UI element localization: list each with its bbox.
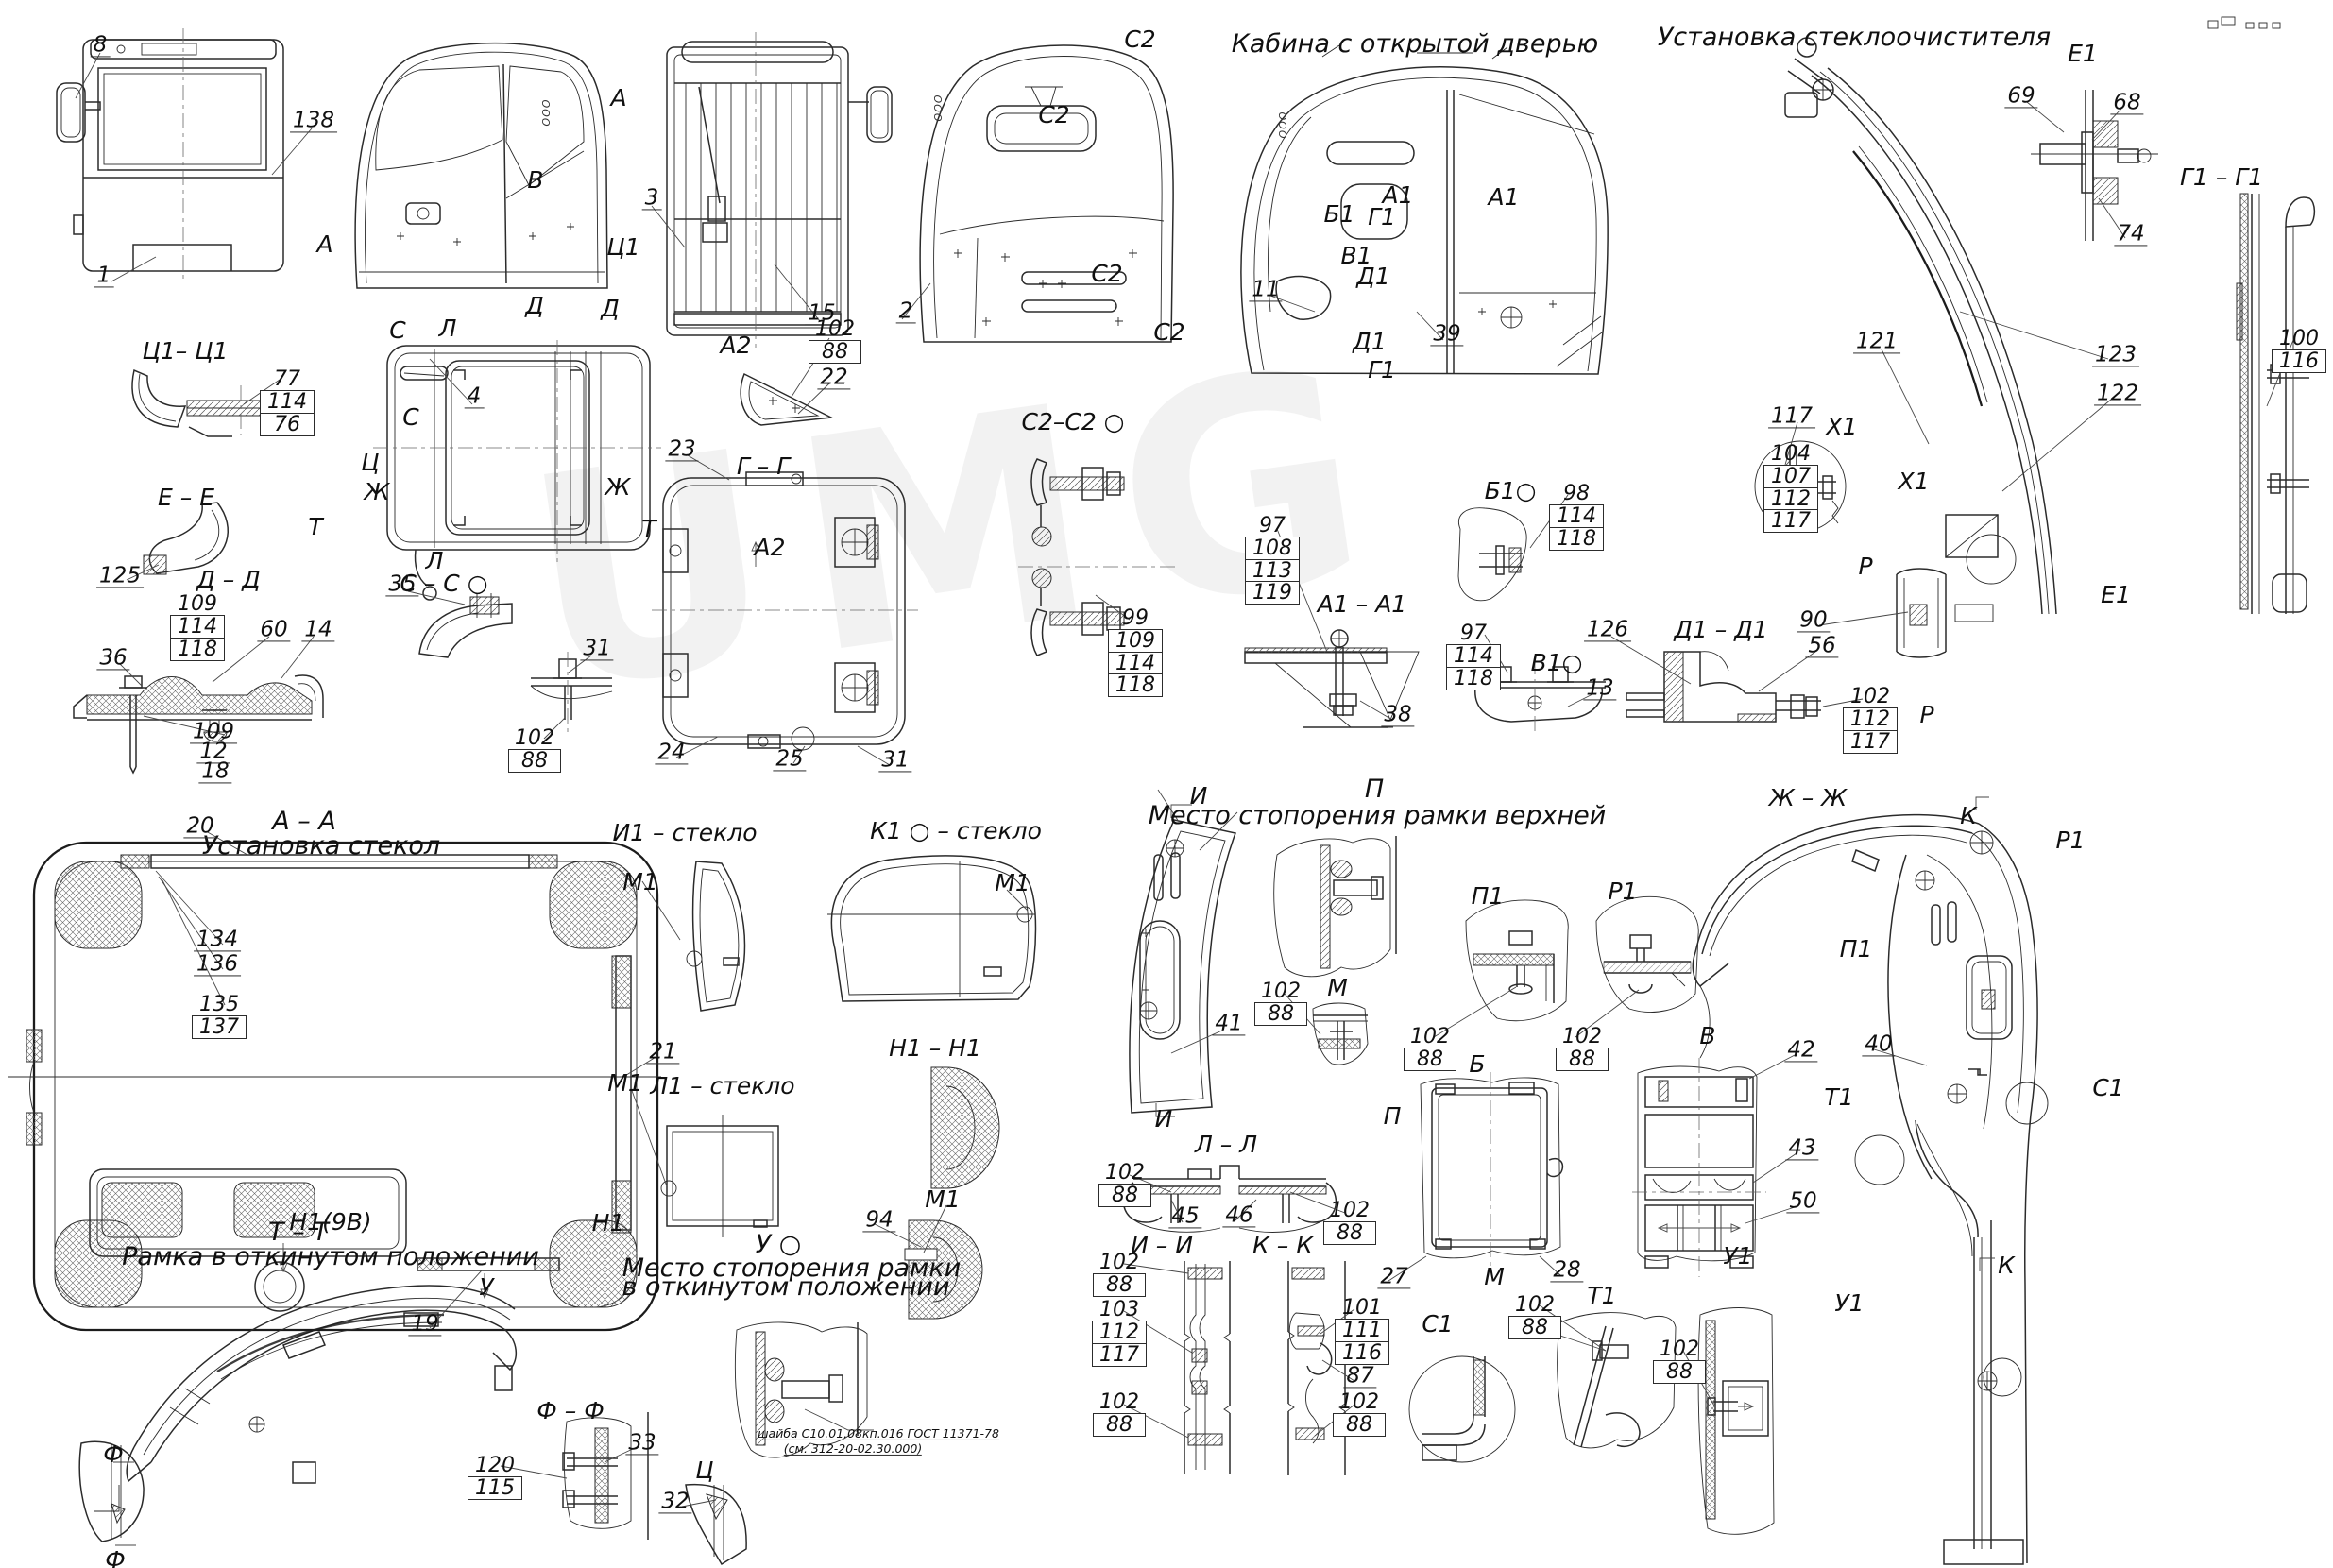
part-callout-stack: 104107112117	[1763, 443, 1818, 533]
detail-EE	[144, 503, 228, 574]
section-label: Ц1– Ц1	[142, 339, 228, 364]
part-callout: 136	[194, 952, 241, 976]
sheet-corner-marks	[2208, 17, 2280, 28]
view-rear-cab	[57, 28, 283, 283]
part-callout: 14	[301, 618, 334, 641]
view-cab-open-door	[1241, 45, 1608, 374]
part-callout: 23	[665, 437, 698, 461]
section-label: Ц	[695, 1458, 713, 1483]
section-label: Ф	[103, 1442, 124, 1467]
section-label: В	[1699, 1024, 1715, 1048]
part-callout: 3	[642, 186, 662, 210]
part-callout-stack: 10288	[508, 727, 561, 773]
section-label: Г1 – Г1	[2180, 165, 2263, 190]
section-GG	[652, 472, 918, 750]
section-label: А1	[1488, 185, 1519, 210]
section-label: М1	[995, 871, 1030, 895]
part-callout: 40	[1862, 1032, 1895, 1056]
section-label: С2	[1091, 262, 1122, 286]
detail-M	[1313, 1003, 1368, 1065]
section-label: К	[1998, 1253, 2015, 1278]
section-label: К1 ○ – стекло	[870, 819, 1042, 844]
section-label: С	[402, 405, 418, 430]
part-callout: 33	[625, 1431, 658, 1455]
detail-P1	[1466, 900, 1568, 1021]
part-callout-stack: 97114118	[1446, 622, 1501, 690]
section-label: С1	[2092, 1076, 2123, 1100]
part-callout: 123	[2092, 343, 2139, 366]
section-label: Ф – Ф	[536, 1399, 604, 1423]
section-label: Т	[308, 515, 322, 539]
section-label: С2	[1038, 103, 1069, 128]
section-label: И	[1155, 1107, 1173, 1132]
section-label: Х1	[1826, 415, 1857, 439]
section-label: П1	[1840, 937, 1873, 962]
part-callout-stack: 97108113119	[1245, 515, 1300, 605]
part-callout-stack: 7711476	[260, 368, 315, 436]
section-label: Р1	[1609, 879, 1638, 904]
part-callout: 1	[94, 264, 114, 287]
detail-U1	[1698, 1308, 1774, 1535]
part-callout: 122	[2094, 382, 2141, 405]
part-callout-stack: 99109114118	[1108, 607, 1163, 697]
subtitle-p-lock: Место стопорения рамки верхней	[1149, 803, 1607, 829]
section-label: Р1	[2056, 828, 2086, 853]
section-label: К	[1960, 804, 1977, 828]
section-G1-G1	[2237, 194, 2314, 614]
note-text: (см. 312-20-02.30.000)	[784, 1442, 922, 1456]
section-label: Л – Л	[1195, 1133, 1257, 1157]
section-label: А1 – А1	[1318, 592, 1406, 617]
part-callout: 32	[658, 1490, 691, 1513]
part-callout-stack: 10288	[1098, 1162, 1151, 1207]
section-label: М	[1327, 976, 1348, 1000]
section-label: Л1 – стекло	[650, 1074, 794, 1099]
section-label: К – К	[1252, 1234, 1313, 1258]
part-callout-stack: 10288	[1093, 1252, 1146, 1297]
part-callout: 126	[1584, 618, 1631, 641]
section-label: С2	[1124, 27, 1155, 52]
section-label: Е1	[2101, 583, 2131, 607]
part-callout: 50	[1786, 1189, 1819, 1213]
section-label: Д1 – Д1	[1674, 618, 1767, 642]
section-label: П	[1384, 1104, 1402, 1129]
section-label: Е – Е	[158, 486, 214, 510]
section-label: В	[527, 168, 543, 193]
view-TT-frame	[79, 1273, 516, 1545]
section-label: Т1	[1824, 1085, 1853, 1110]
part-callout: 125	[96, 564, 144, 588]
section-label: Ж	[365, 480, 390, 504]
section-label: М1	[607, 1071, 642, 1096]
section-label: А2	[720, 333, 751, 358]
part-callout: 56	[1805, 634, 1838, 657]
section-label: Т	[641, 517, 656, 541]
part-callout: 117	[1768, 404, 1815, 428]
subtitle-tt: Рамка в откинутом положении	[122, 1244, 539, 1270]
section-label: Г1	[1368, 358, 1396, 383]
section-label: Б1	[1323, 202, 1354, 227]
part-callout-stack: 10288	[1404, 1026, 1456, 1071]
section-II	[1184, 1261, 1230, 1474]
section-KK	[1288, 1261, 1345, 1475]
section-label: С1	[1422, 1312, 1453, 1337]
section-label: Д	[601, 297, 620, 321]
part-callout: 46	[1222, 1203, 1255, 1227]
detail-SS	[419, 593, 512, 657]
part-callout: 22	[817, 366, 850, 389]
part-callout: 11	[1249, 278, 1282, 301]
part-callout-stack: 10288	[1093, 1391, 1146, 1437]
view-top	[373, 340, 661, 600]
section-label: Л	[439, 316, 457, 341]
part-callout: ООО	[539, 100, 551, 128]
part-callout-stack: 10288	[1323, 1200, 1376, 1245]
part-callout: 35	[385, 572, 418, 596]
drawing-sheet: UMG	[0, 0, 2333, 1568]
section-label: Е1	[2068, 42, 2098, 66]
detail-C1C1	[132, 370, 280, 436]
part-callout: 21	[646, 1040, 679, 1064]
part-callout: 2	[896, 299, 916, 323]
section-label: Д1	[1356, 264, 1389, 289]
section-label: У1	[1834, 1291, 1864, 1316]
detail-B1	[1458, 508, 1526, 601]
section-label: Ж – Ж	[1769, 786, 1847, 810]
part-callout: 13	[1583, 676, 1616, 700]
section-label: Л	[426, 549, 444, 573]
part-callout: 31	[878, 748, 911, 772]
detail-R1	[1596, 896, 1698, 1012]
view-side-panels	[920, 45, 1173, 342]
part-callout: 60	[257, 618, 290, 641]
part-callout: 68	[2110, 91, 2143, 114]
section-label: С	[389, 318, 405, 343]
section-label: Б	[1469, 1052, 1485, 1077]
part-callout-stack: 10288	[1508, 1294, 1561, 1339]
section-label: Н1(9В)	[289, 1210, 371, 1235]
part-callout: 28	[1550, 1258, 1583, 1282]
part-callout: 38	[1381, 703, 1414, 726]
line-art	[0, 0, 2333, 1568]
detail-L1-glass	[661, 1115, 778, 1237]
section-label: Г1	[1368, 205, 1396, 230]
detail-I1-glass	[687, 861, 744, 1011]
part-callout: 20	[183, 814, 216, 838]
section-label: Ф	[105, 1548, 126, 1568]
section-label: Ц	[361, 451, 379, 475]
section-label: И	[1190, 784, 1208, 809]
section-label: Т1	[1587, 1284, 1616, 1308]
section-label: П1	[1472, 884, 1505, 909]
detail-31	[531, 652, 612, 732]
part-callout: 31	[580, 637, 613, 660]
section-label: Ц1	[606, 235, 639, 260]
subtitle-u-lock-2: в откинутом положении	[622, 1274, 949, 1301]
section-ZhZh	[1693, 797, 2048, 1564]
part-callout: 121	[1853, 330, 1900, 353]
part-callout-stack: 109114118	[170, 593, 225, 661]
part-callout: 39	[1430, 322, 1463, 346]
section-label: В1○	[1531, 651, 1583, 675]
section-label: М1	[622, 870, 657, 895]
section-label: Г – Г	[737, 454, 790, 479]
section-label: Д	[525, 294, 544, 318]
detail-N1N1	[931, 1067, 999, 1188]
section-label: У	[479, 1275, 493, 1300]
part-callout: 4	[465, 384, 485, 408]
part-callout: ООО	[931, 95, 943, 123]
view-pillar	[1130, 790, 1237, 1116]
part-callout: 25	[773, 747, 806, 771]
part-callout: 8	[91, 33, 111, 57]
section-label: Д1	[1353, 330, 1386, 354]
section-label: Д – Д	[196, 568, 260, 592]
part-callout: 18	[198, 759, 231, 783]
section-label: И1 – стекло	[612, 821, 757, 845]
section-label: Н1 – Н1	[889, 1036, 981, 1061]
section-label: Р	[1858, 554, 1872, 579]
detail-S1	[1409, 1356, 1515, 1462]
part-callout: 24	[655, 741, 688, 764]
part-callout: 19	[408, 1312, 441, 1336]
part-callout: 36	[96, 646, 129, 670]
section-label: С2–С2 ○	[1022, 410, 1125, 435]
title-cab-open-door: Кабина с открытой дверью	[1232, 31, 1598, 58]
part-callout-stack: 10288	[1333, 1391, 1386, 1437]
part-callout: 41	[1212, 1012, 1245, 1035]
title-wiper-install: Установка стеклоочистителя	[1658, 25, 2051, 51]
section-label: М	[1484, 1265, 1505, 1289]
part-callout: 134	[194, 928, 241, 951]
section-label: А	[610, 86, 626, 111]
part-callout-stack: 10288	[809, 318, 861, 364]
part-callout: 90	[1797, 608, 1830, 632]
part-callout: 43	[1785, 1136, 1818, 1160]
section-label: Х1	[1898, 469, 1929, 494]
section-label: А2	[754, 536, 785, 560]
view-front-grid	[667, 32, 892, 348]
detail-C-corner	[686, 1485, 746, 1564]
view-side-closed	[355, 43, 607, 288]
part-callout: 42	[1784, 1038, 1817, 1062]
part-callout-stack: 100116	[2272, 328, 2326, 373]
view-B-frame	[1421, 1072, 1562, 1266]
detail-P-lock	[1274, 836, 1396, 977]
part-callout: ООО	[1276, 112, 1287, 140]
part-callout: 74	[2114, 222, 2147, 246]
part-callout: 94	[862, 1208, 895, 1232]
part-callout-stack: 103112117	[1092, 1299, 1147, 1367]
part-callout-stack: 120115	[468, 1455, 522, 1500]
part-callout: 27	[1377, 1265, 1410, 1288]
part-callout-stack: 10288	[1653, 1338, 1706, 1384]
section-label: Б1○	[1485, 479, 1537, 503]
section-label: Р	[1919, 703, 1933, 727]
part-callout: 138	[290, 109, 337, 132]
part-callout-stack: 135137	[192, 994, 247, 1039]
part-callout: 87	[1343, 1364, 1376, 1388]
part-callout-stack: 10288	[1556, 1026, 1609, 1071]
detail-D1D1	[1626, 652, 1821, 722]
section-label: Ж	[605, 475, 631, 500]
note-text: шайба С10.01.08кп.016 ГОСТ 11371-78	[758, 1427, 999, 1440]
section-label: А	[316, 232, 332, 257]
part-callout-stack: 10288	[1254, 980, 1307, 1026]
title-p-lock: П	[1365, 776, 1384, 803]
part-callout-stack: 101111116	[1335, 1297, 1389, 1365]
section-label: Н1	[592, 1211, 625, 1236]
part-callout-stack: 102112117	[1843, 686, 1898, 754]
section-label: У1	[1723, 1244, 1752, 1269]
section-label: М1	[925, 1187, 960, 1212]
section-label: С2	[1153, 320, 1184, 345]
part-callout: 69	[2004, 84, 2037, 108]
subtitle-aa: Установка стекол	[202, 833, 440, 860]
part-callout-stack: 98114118	[1549, 483, 1604, 551]
part-callout: 45	[1168, 1204, 1201, 1228]
